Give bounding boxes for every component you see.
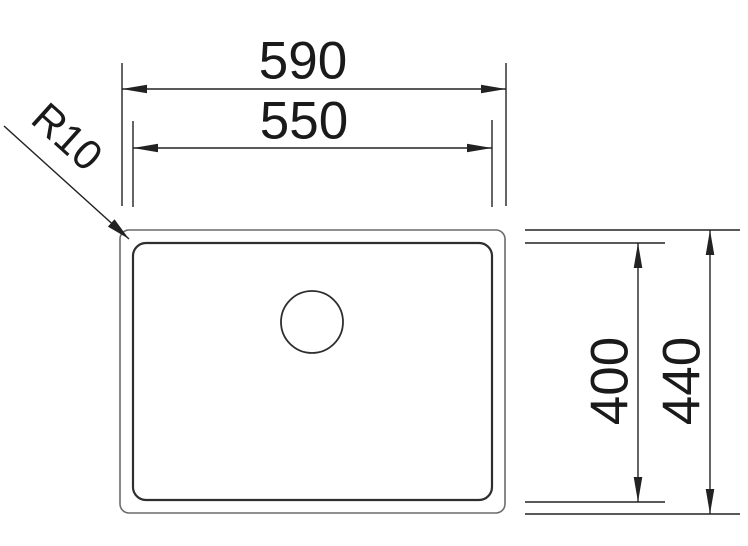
dim-label-inner-width: 550: [260, 95, 348, 148]
sink-inner-outline: [133, 243, 492, 500]
dim-label-inner-depth: 400: [584, 337, 637, 425]
dim-label-outer-width: 590: [259, 35, 347, 88]
drain-hole-circle: [281, 291, 343, 353]
sink-outer-outline: [120, 230, 505, 513]
dim-label-outer-depth: 440: [656, 337, 709, 425]
drawing-linework: [0, 0, 748, 546]
technical-drawing-canvas: 590 550 400 440 R10: [0, 0, 748, 546]
